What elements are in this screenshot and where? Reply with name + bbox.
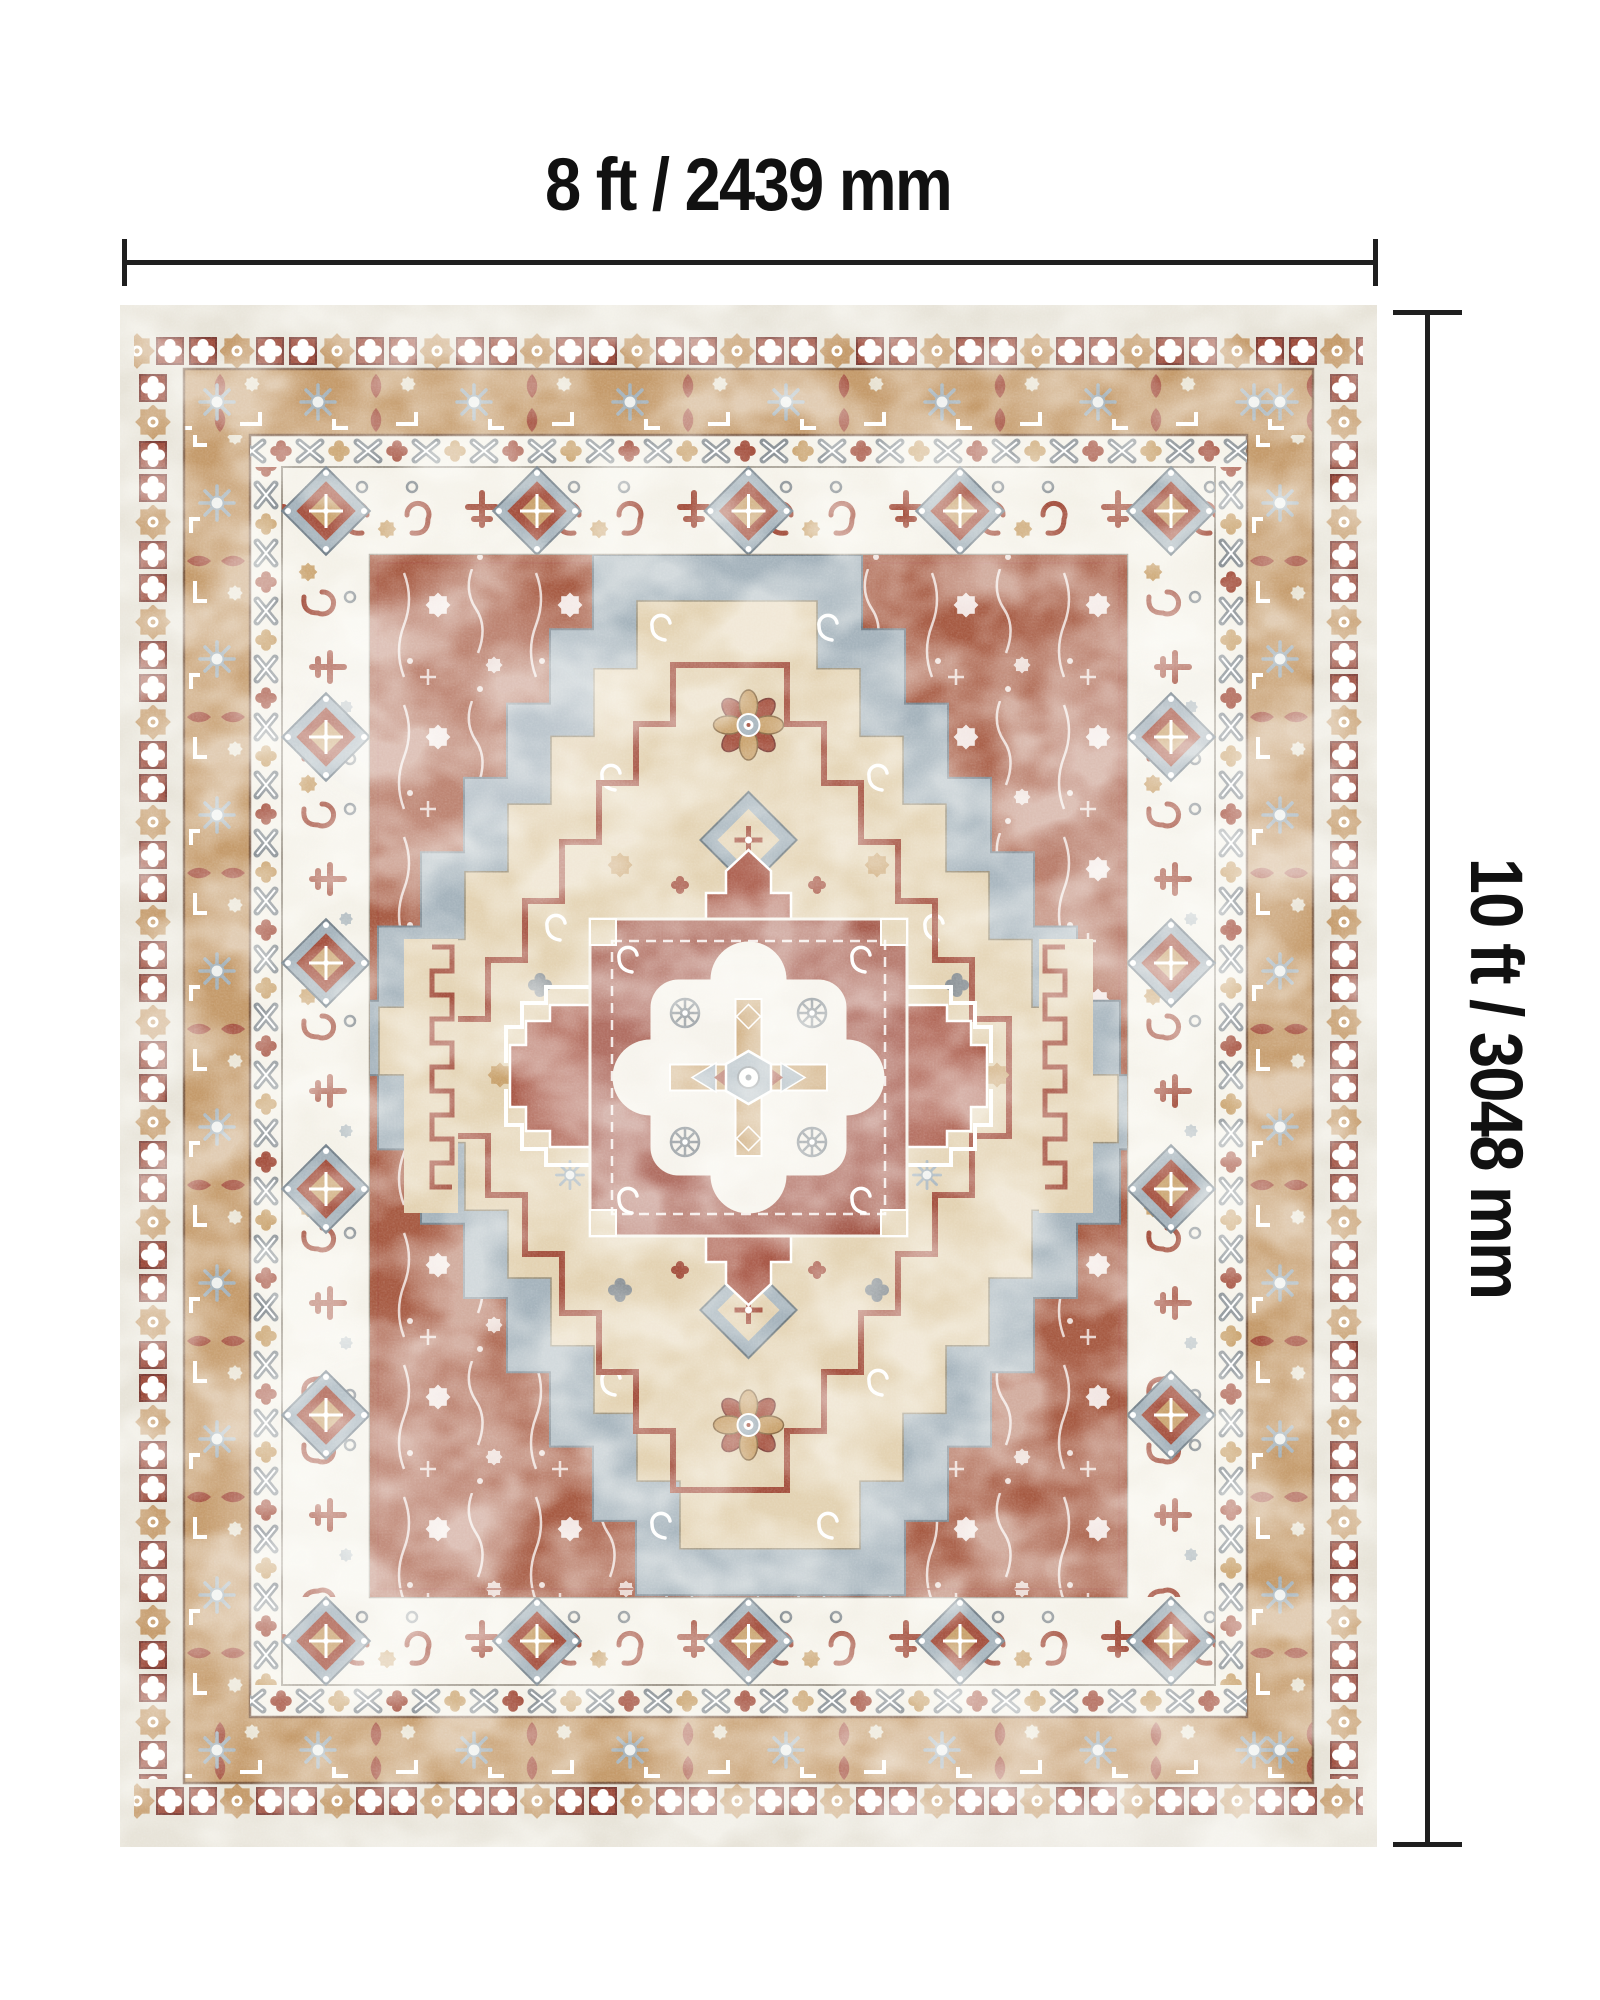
product-dimension-diagram: 8 ft / 2439 mm 10 ft / 3048 mm — [0, 0, 1600, 2000]
height-bottom-tick — [1393, 1842, 1462, 1847]
height-dimension-line — [1425, 310, 1430, 1847]
width-right-tick — [1373, 239, 1378, 286]
rug-image — [120, 305, 1377, 1847]
height-dimension-label: 10 ft / 3048 mm — [1459, 858, 1533, 1299]
height-top-tick — [1393, 310, 1462, 315]
rug-graphic — [120, 305, 1377, 1847]
width-dimension-line — [122, 260, 1378, 265]
width-dimension-label: 8 ft / 2439 mm — [220, 148, 1276, 222]
distress-texture — [120, 305, 1377, 1847]
width-left-tick — [122, 239, 127, 286]
